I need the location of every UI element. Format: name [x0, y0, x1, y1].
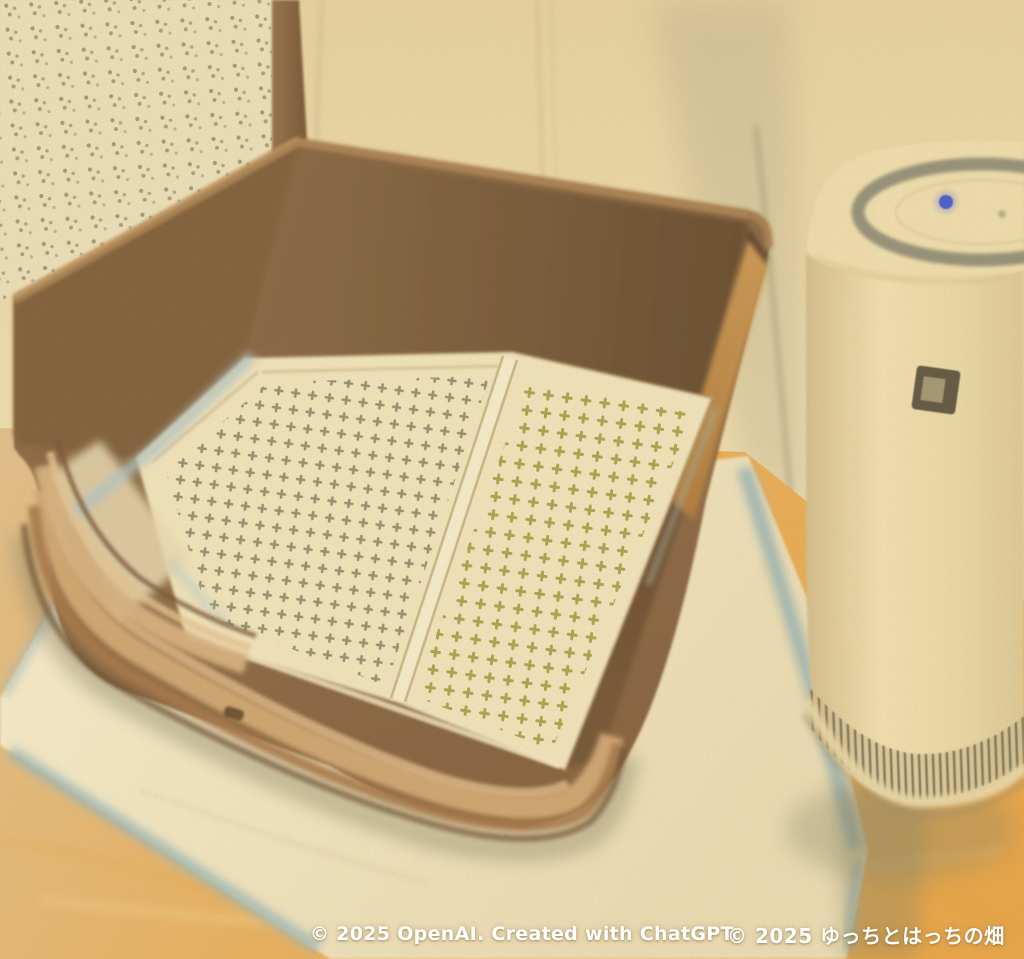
watermark-artist: © 2025 ゆっちとはっちの畑	[727, 920, 1005, 949]
watermark-openai: © 2025 OpenAI. Created with ChatGPT.	[310, 923, 738, 945]
scene-drawing	[0, 0, 1024, 959]
paper-grain-overlay	[0, 0, 1024, 959]
illustration-canvas: © 2025 OpenAI. Created with ChatGPT. © 2…	[0, 0, 1024, 959]
